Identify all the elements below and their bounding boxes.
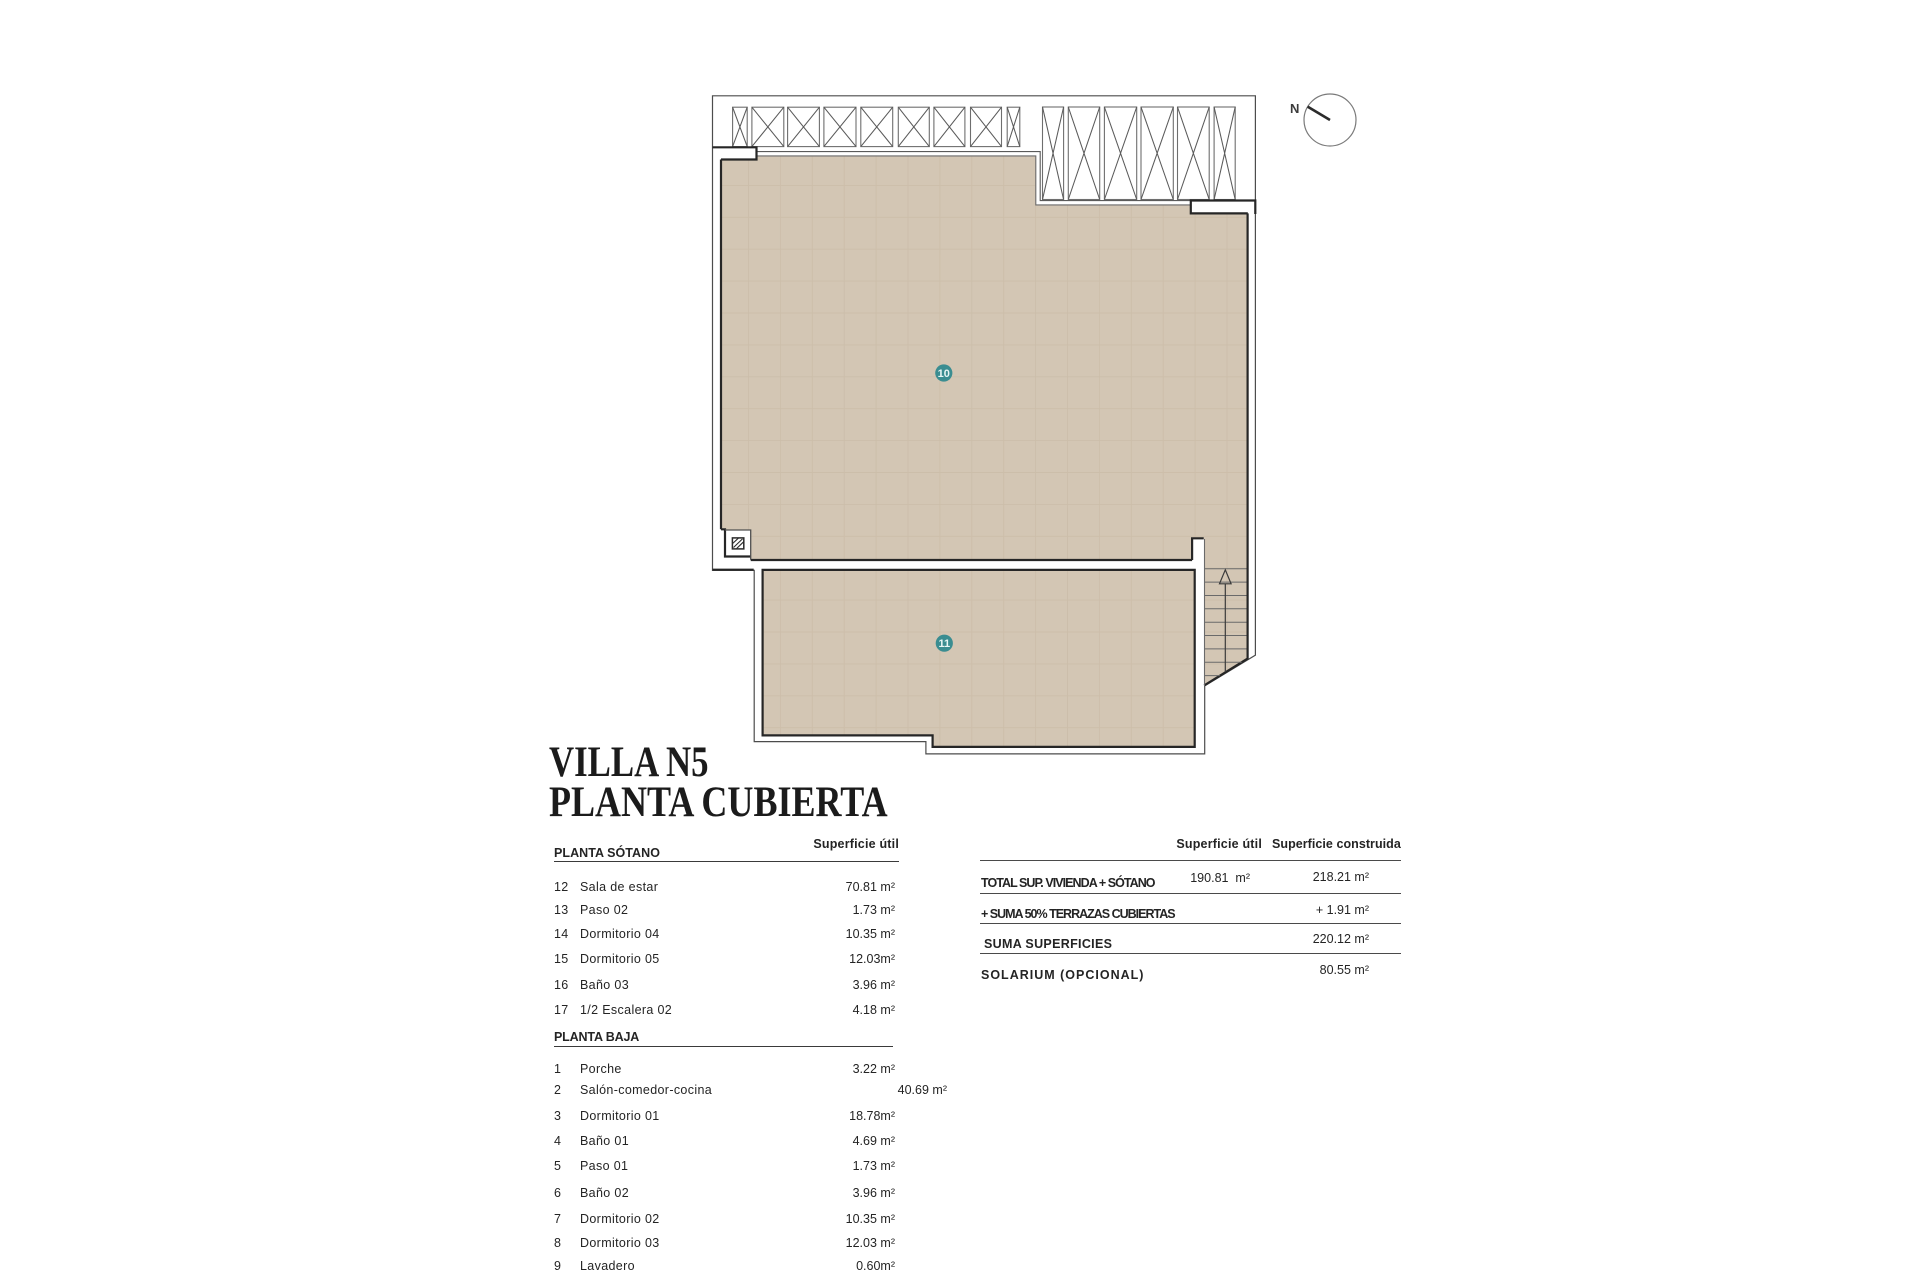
svg-text:11: 11 [938,638,950,650]
svg-text:N: N [1290,101,1299,116]
svg-text:10: 10 [938,368,950,380]
